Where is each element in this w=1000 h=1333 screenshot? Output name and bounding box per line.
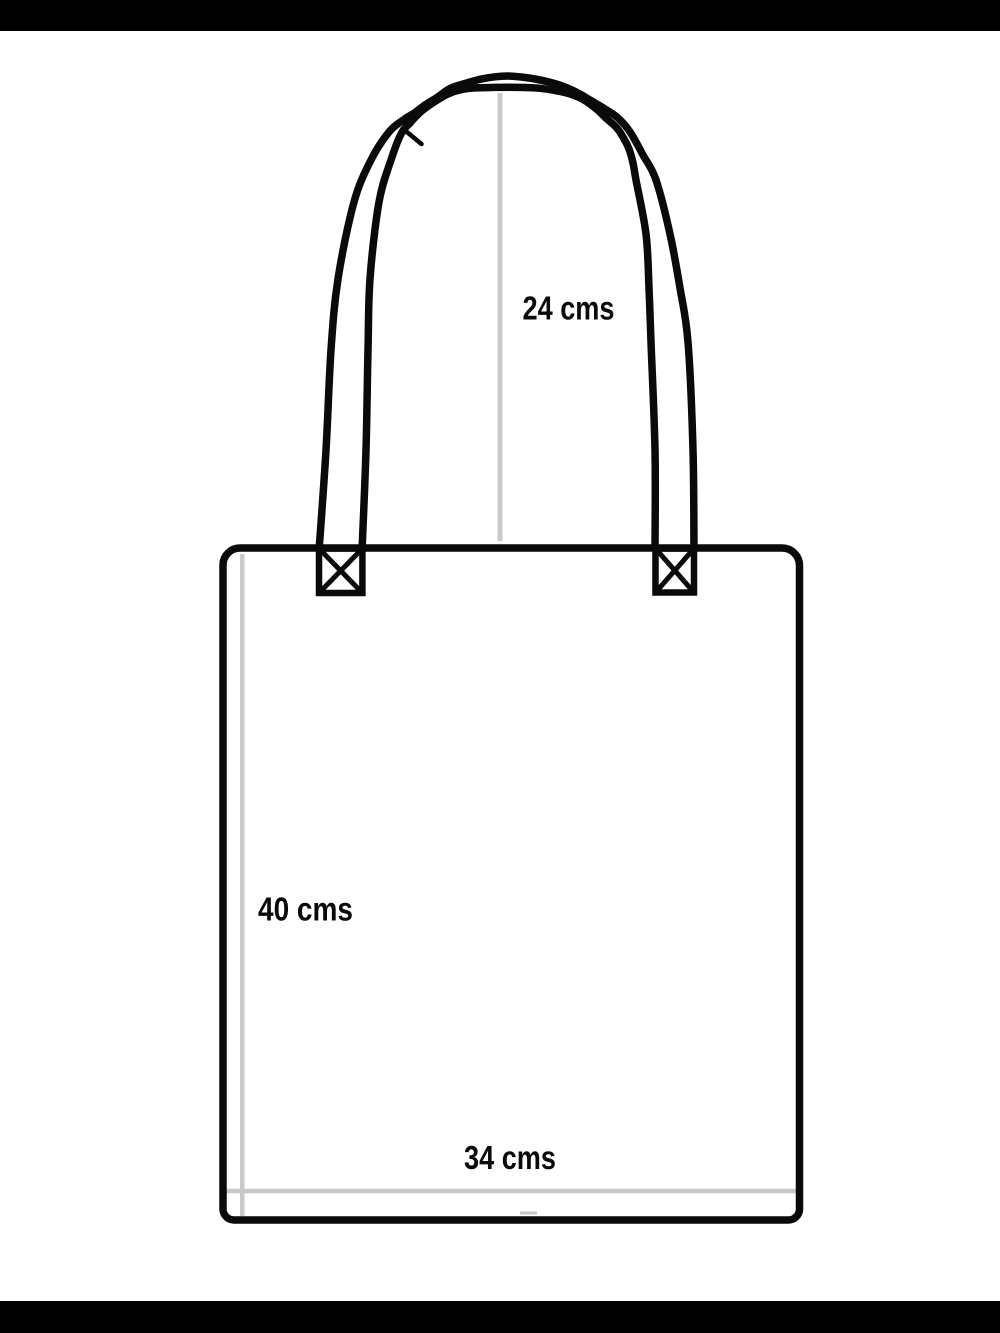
svg-text:24 cms: 24 cms bbox=[523, 291, 615, 328]
svg-text:34 cms: 34 cms bbox=[464, 1140, 556, 1177]
svg-text:40 cms: 40 cms bbox=[258, 892, 353, 929]
